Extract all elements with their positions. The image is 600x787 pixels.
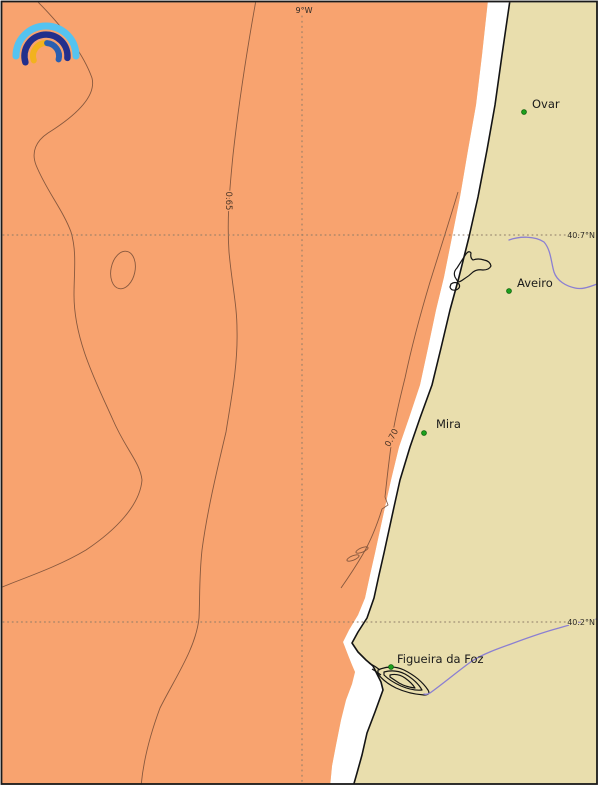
city-label-mira: Mira <box>436 417 461 431</box>
meridian-9w-label: 9°W <box>296 6 313 15</box>
city-dot-ovar <box>522 110 527 115</box>
parallel-407n-label: 40.7°N <box>567 231 595 240</box>
map-canvas: 0.65 0.70 9°W 40.7°N 40.2°N Ovar Aveiro … <box>0 0 600 787</box>
city-dot-figueira-da-foz <box>389 665 394 670</box>
city-label-ovar: Ovar <box>532 97 560 111</box>
contour-label-065: 0.65 <box>223 192 233 211</box>
city-label-aveiro: Aveiro <box>517 276 553 290</box>
city-dot-aveiro <box>507 289 512 294</box>
city-label-figueira-da-foz: Figueira da Foz <box>397 652 484 666</box>
parallel-402n-label: 40.2°N <box>567 618 595 627</box>
map-viewport: 0.65 0.70 9°W 40.7°N 40.2°N Ovar Aveiro … <box>0 0 600 787</box>
city-dot-mira <box>422 431 427 436</box>
